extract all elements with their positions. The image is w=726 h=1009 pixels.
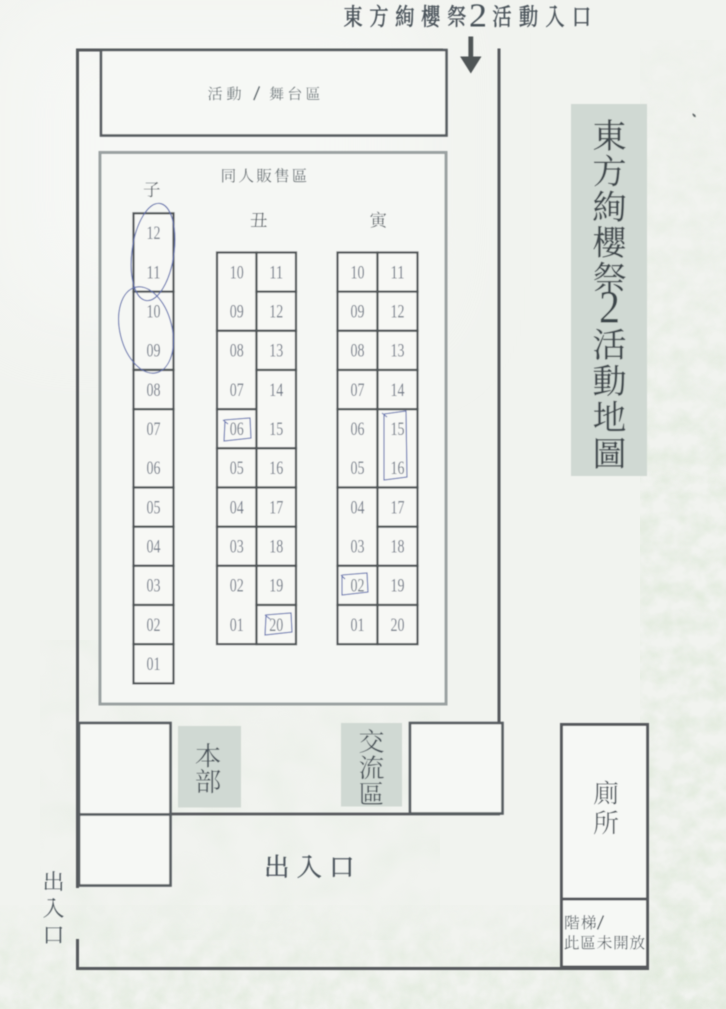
svg-text:18: 18	[391, 537, 405, 558]
svg-text:06: 06	[147, 458, 161, 479]
svg-text:08: 08	[351, 341, 365, 362]
svg-text:16: 16	[391, 458, 405, 479]
svg-text:06: 06	[351, 419, 365, 440]
svg-text:09: 09	[147, 341, 161, 362]
svg-text:16: 16	[269, 458, 283, 479]
svg-text:19: 19	[391, 576, 405, 597]
svg-text:17: 17	[391, 497, 405, 518]
svg-text:01: 01	[147, 654, 161, 675]
svg-text:04: 04	[351, 497, 365, 518]
svg-text:01: 01	[230, 615, 244, 636]
svg-text:08: 08	[147, 380, 161, 401]
svg-text:14: 14	[391, 380, 405, 401]
svg-text:03: 03	[351, 537, 365, 558]
svg-text:03: 03	[147, 576, 161, 597]
svg-text:12: 12	[391, 302, 405, 323]
svg-text:12: 12	[269, 302, 283, 323]
svg-text:18: 18	[269, 537, 283, 558]
svg-text:12: 12	[147, 223, 161, 244]
svg-text:02: 02	[230, 576, 244, 597]
svg-text:02: 02	[147, 615, 161, 636]
svg-text:2: 2	[599, 282, 620, 334]
svg-text:07: 07	[230, 380, 244, 401]
svg-text:04: 04	[147, 537, 161, 558]
svg-text:03: 03	[230, 537, 244, 558]
svg-text:01: 01	[351, 615, 365, 636]
svg-text:14: 14	[269, 380, 283, 401]
svg-text:05: 05	[351, 458, 365, 479]
svg-text:09: 09	[230, 302, 244, 323]
svg-text:15: 15	[391, 419, 405, 440]
svg-text:11: 11	[391, 262, 405, 283]
svg-text:2: 2	[469, 0, 487, 34]
svg-text:17: 17	[269, 497, 283, 518]
svg-text:08: 08	[230, 341, 244, 362]
svg-text:13: 13	[391, 341, 405, 362]
svg-text:11: 11	[269, 262, 283, 283]
svg-text:07: 07	[147, 419, 161, 440]
svg-text:10: 10	[230, 262, 244, 283]
svg-text:06: 06	[230, 419, 244, 440]
svg-text:05: 05	[147, 497, 161, 518]
svg-text:19: 19	[269, 576, 283, 597]
svg-text:15: 15	[269, 419, 283, 440]
svg-text:11: 11	[147, 262, 161, 283]
svg-text:10: 10	[147, 302, 161, 323]
svg-text:07: 07	[351, 380, 365, 401]
svg-text:09: 09	[351, 302, 365, 323]
svg-text:10: 10	[351, 262, 365, 283]
svg-text:13: 13	[269, 341, 283, 362]
svg-text:05: 05	[230, 458, 244, 479]
svg-text:04: 04	[230, 497, 244, 518]
svg-text:20: 20	[391, 615, 405, 636]
